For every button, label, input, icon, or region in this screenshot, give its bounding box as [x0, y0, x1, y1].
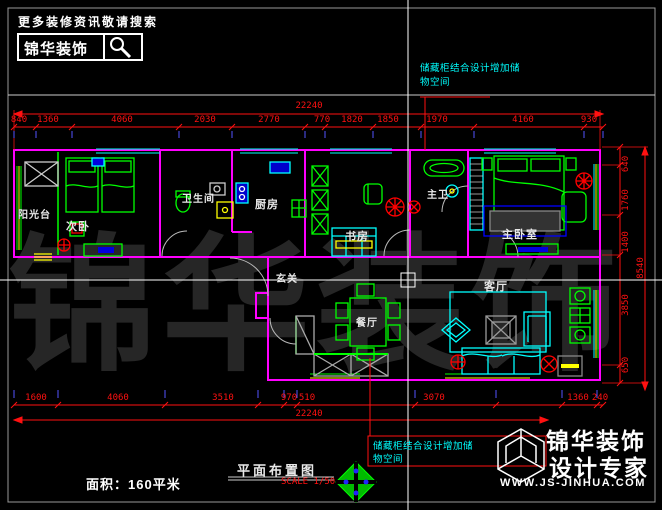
note-top-line1: 储藏柜结合设计增加储	[420, 60, 520, 74]
room-label-master-bath: 主卫	[427, 186, 449, 201]
dim-bottom-4: 510	[299, 393, 315, 403]
dim-top-7: 1850	[377, 115, 399, 125]
room-label-balcony: 阳光台	[18, 206, 51, 221]
annotation-leaders	[368, 97, 546, 466]
dim-top-1: 1360	[37, 115, 59, 125]
room-label-dining: 餐厅	[356, 314, 378, 329]
dim-top-8: 1970	[426, 115, 448, 125]
doors	[162, 186, 518, 344]
note-bottom-line1: 储藏柜结合设计增加储	[373, 438, 473, 452]
room-label-bathroom: 卫生间	[182, 190, 215, 205]
dim-top-5: 770	[314, 115, 330, 125]
room-label-living: 客厅	[484, 278, 508, 294]
furniture	[25, 156, 592, 376]
dim-top-total: 22240	[295, 101, 322, 111]
dim-top-3: 2030	[194, 115, 216, 125]
dim-bottom-1: 4060	[107, 393, 129, 403]
note-bottom-line2: 物空间	[373, 451, 403, 465]
note-top-line2: 物空间	[420, 74, 450, 88]
cube-logo-icon	[498, 429, 544, 482]
dim-top-0: 840	[11, 115, 27, 125]
dim-right-0: 640	[621, 156, 631, 172]
room-label-master-bedroom: 主卧室	[502, 226, 538, 242]
dim-top-6: 1820	[341, 115, 363, 125]
dim-bottom-2: 3510	[212, 393, 234, 403]
room-label-entry: 玄关	[276, 270, 298, 285]
dim-right-4: 650	[621, 357, 631, 373]
room-label-study: 书房	[345, 228, 369, 244]
dim-right-total: 8540	[636, 257, 646, 279]
dim-right-2: 1400	[621, 231, 631, 253]
wall-accents	[58, 152, 296, 354]
dim-bottom-7: 240	[592, 393, 608, 403]
room-label-kitchen: 厨房	[255, 196, 279, 212]
dim-bottom-6: 1360	[567, 393, 589, 403]
drawing-scale: SCALE 1/50	[281, 477, 335, 487]
cad-drawing-canvas[interactable]: 锦华装饰	[0, 0, 662, 510]
dim-top-9: 4160	[512, 115, 534, 125]
dim-top-4: 2770	[258, 115, 280, 125]
company-diamond-logo	[336, 462, 376, 502]
dim-top-10: 930	[581, 115, 597, 125]
dim-bottom-5: 3070	[423, 393, 445, 403]
dim-right-3: 3850	[621, 294, 631, 316]
header-tagline: 更多装修资讯敬请搜索	[18, 13, 158, 30]
room-label-second-bedroom: 次卧	[66, 218, 90, 234]
footer-website: WWW.JS-JINHUA.COM	[500, 477, 646, 489]
dim-bottom-3: 970	[281, 393, 297, 403]
dim-top-2: 4060	[111, 115, 133, 125]
dim-right-1: 1760	[621, 189, 631, 211]
area-label: 面积：160平米	[86, 474, 181, 493]
header-brand: 锦华装饰	[24, 38, 88, 59]
dim-bottom-0: 1600	[25, 393, 47, 403]
dim-bottom-total: 22240	[295, 409, 322, 419]
